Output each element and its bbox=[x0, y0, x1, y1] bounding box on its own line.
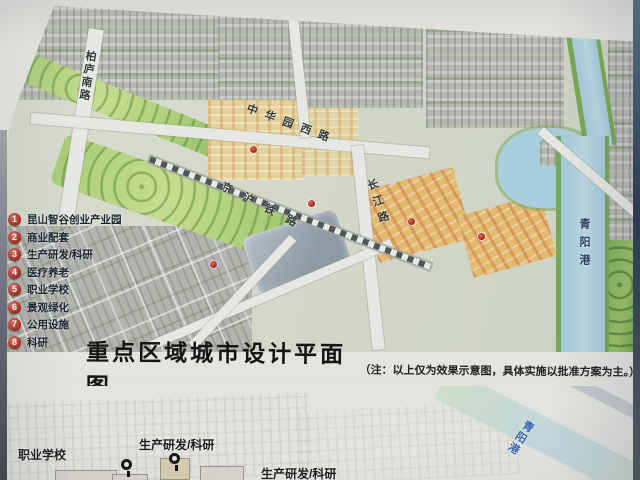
map-marker bbox=[250, 146, 257, 153]
river-label-qingyang: 青阳港 bbox=[576, 218, 592, 272]
map-marker bbox=[308, 200, 315, 207]
legend-number-badge: 3 bbox=[8, 248, 21, 261]
legend-number-badge: 5 bbox=[8, 283, 21, 296]
map-marker bbox=[408, 218, 415, 225]
legend-item-label: 昆山智谷创业产业园 bbox=[27, 212, 122, 227]
photo-edge-left bbox=[0, 130, 7, 480]
legend-number-badge: 1 bbox=[8, 213, 21, 226]
photo-edge-right bbox=[633, 0, 640, 480]
sketch-label-rd-2: 生产研发/科研 bbox=[261, 465, 336, 480]
perspective-rendering: 职业学校 生产研发/科研 生产研发/科研 青阳港 bbox=[0, 386, 640, 480]
legend-item: 4 医疗养老 bbox=[8, 266, 138, 279]
district-northeast bbox=[426, 10, 564, 128]
legend-item-label: 职业学校 bbox=[27, 282, 69, 297]
legend-item: 2 商业配套 bbox=[8, 231, 138, 244]
map-pin-icon bbox=[169, 453, 180, 464]
map-marker bbox=[478, 233, 485, 240]
sketch-building bbox=[55, 470, 117, 480]
legend-item: 5 职业学校 bbox=[8, 283, 138, 296]
legend-number-badge: 4 bbox=[8, 266, 21, 279]
legend-item: 1 昆山智谷创业产业园 bbox=[8, 213, 138, 226]
legend-number-badge: 8 bbox=[8, 336, 21, 349]
legend-item-label: 生产研发/科研 bbox=[27, 247, 93, 262]
district-north-center bbox=[218, 0, 423, 108]
legend-item-label: 公用设施 bbox=[27, 317, 69, 332]
map-pin-icon bbox=[121, 459, 132, 470]
figure-caption: 重点区域城市设计平面图 （注：以上仅为效果示意图，具体实施以批准方案为主。） bbox=[0, 349, 640, 389]
legend-item-label: 医疗养老 bbox=[27, 265, 69, 280]
sketch-building bbox=[200, 466, 244, 480]
legend-item: 3 生产研发/科研 bbox=[8, 248, 138, 261]
photographed-plan-sheet: 柏庐南路 中华园西路 京沪铁路 长江路 青阳港 1 昆山智谷创业产业园 2 商业… bbox=[0, 0, 640, 480]
sketch-label-rd-1: 生产研发/科研 bbox=[139, 436, 214, 453]
sketch-label-vocational-school: 职业学校 bbox=[18, 446, 66, 463]
legend-item-label: 科研 bbox=[27, 335, 48, 350]
legend-number-badge: 6 bbox=[8, 301, 21, 314]
legend-item-label: 商业配套 bbox=[27, 230, 69, 245]
legend-number-badge: 2 bbox=[8, 231, 21, 244]
sketch-building bbox=[112, 474, 148, 480]
map-legend: 1 昆山智谷创业产业园 2 商业配套 3 生产研发/科研 4 医疗养老 5 职业… bbox=[8, 213, 138, 353]
legend-item: 6 景观绿化 bbox=[8, 301, 138, 314]
master-plan-map: 柏庐南路 中华园西路 京沪铁路 长江路 青阳港 1 昆山智谷创业产业园 2 商业… bbox=[0, 0, 640, 352]
caption-note: （注：以上仅为效果示意图，具体实施以批准方案为主。） bbox=[359, 361, 640, 379]
legend-item-label: 景观绿化 bbox=[27, 300, 69, 315]
legend-item: 7 公用设施 bbox=[8, 318, 138, 331]
legend-number-badge: 7 bbox=[8, 318, 21, 331]
map-marker bbox=[210, 261, 217, 268]
